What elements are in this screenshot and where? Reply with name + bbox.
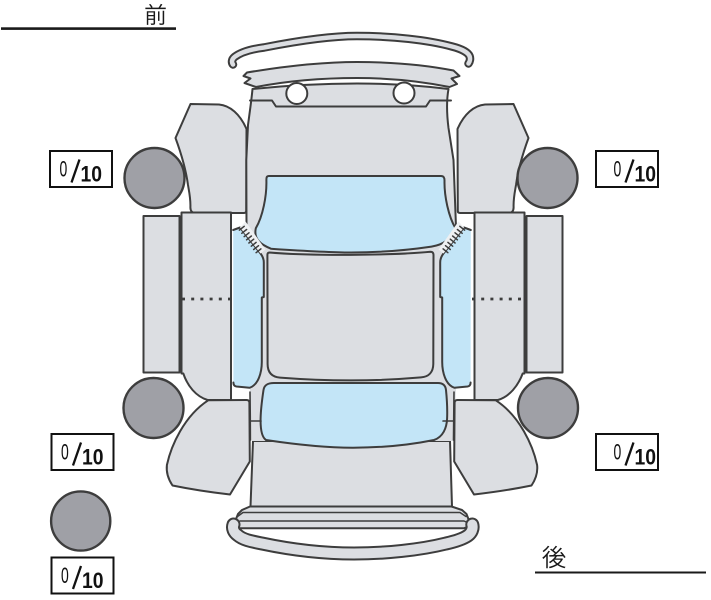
svg-text:0: 0: [614, 439, 622, 464]
svg-text:10: 10: [82, 569, 104, 593]
svg-text:10: 10: [635, 445, 657, 469]
svg-text:0: 0: [60, 156, 68, 181]
svg-text:10: 10: [81, 162, 103, 186]
svg-text:0: 0: [61, 439, 69, 464]
svg-text:0: 0: [614, 156, 622, 181]
svg-text:0: 0: [61, 563, 69, 588]
svg-text:10: 10: [635, 162, 657, 186]
svg-text:10: 10: [82, 445, 104, 469]
